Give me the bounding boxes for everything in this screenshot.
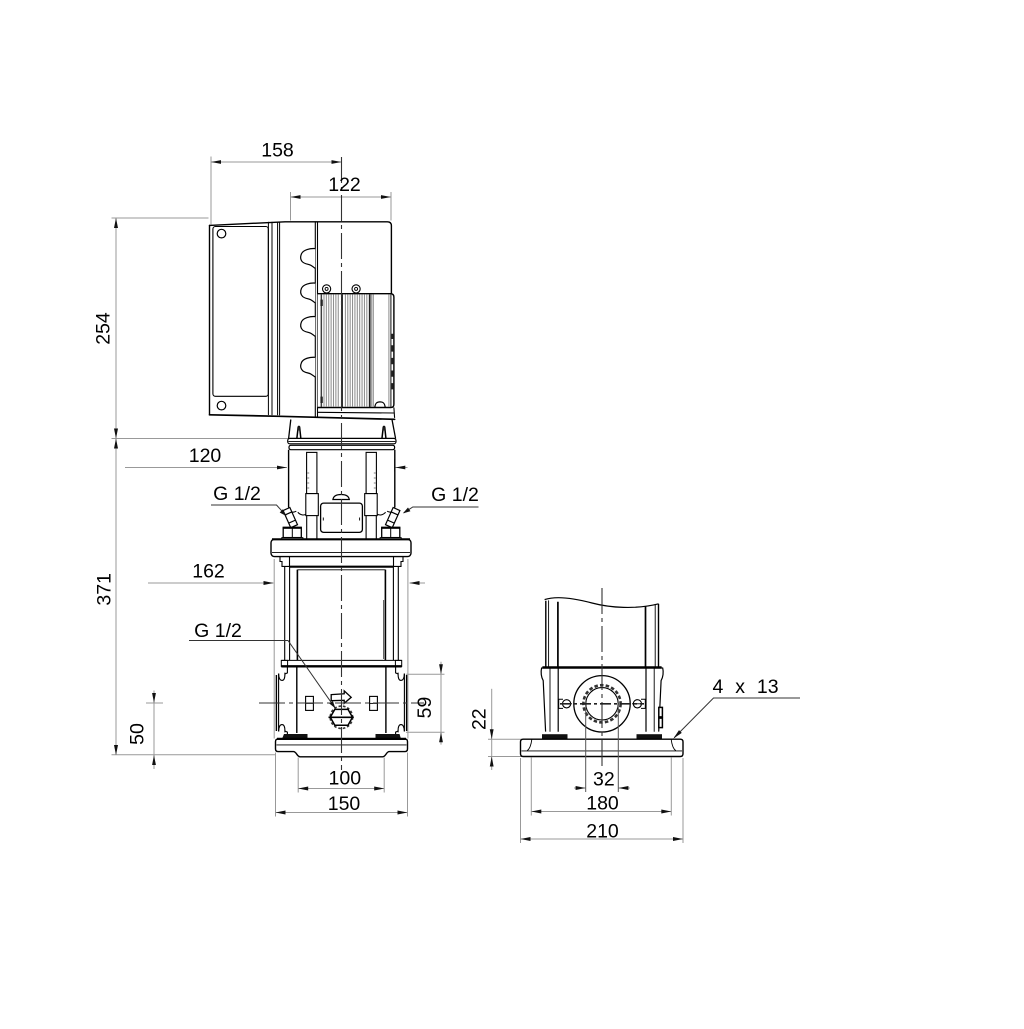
svg-text:59: 59 (414, 697, 436, 719)
svg-text:254: 254 (93, 312, 115, 345)
svg-text:180: 180 (586, 793, 619, 815)
svg-text:122: 122 (328, 174, 361, 196)
svg-text:4 x 13: 4 x 13 (712, 676, 778, 698)
svg-text:371: 371 (94, 573, 116, 606)
svg-text:150: 150 (328, 793, 361, 815)
svg-text:50: 50 (127, 723, 149, 745)
svg-text:100: 100 (329, 768, 362, 790)
svg-text:210: 210 (586, 821, 619, 843)
svg-text:162: 162 (192, 561, 225, 583)
svg-text:158: 158 (261, 140, 294, 162)
svg-text:32: 32 (593, 769, 615, 791)
svg-text:G 1/2: G 1/2 (431, 484, 479, 506)
svg-text:G 1/2: G 1/2 (213, 483, 261, 505)
svg-text:G 1/2: G 1/2 (194, 620, 242, 642)
svg-text:120: 120 (189, 445, 222, 467)
svg-text:22: 22 (469, 708, 491, 730)
